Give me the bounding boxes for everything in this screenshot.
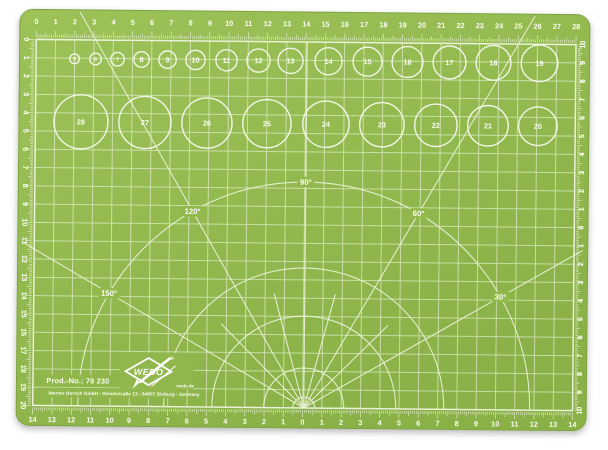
- top-ruler-number: 21: [437, 21, 445, 30]
- right-ruler-number: 9: [575, 390, 584, 394]
- circle-number-17: 17: [445, 58, 453, 67]
- left-ruler-number: 11: [20, 237, 29, 245]
- circle-number-9: 9: [165, 55, 169, 64]
- top-ruler-number: 11: [245, 19, 253, 28]
- right-ruler-number: 10: [575, 407, 584, 415]
- left-ruler-number: 8: [21, 184, 30, 188]
- bottom-ruler-number: 6: [416, 419, 420, 428]
- circle-number-18: 18: [489, 58, 497, 67]
- bottom-ruler-number: 2: [339, 418, 343, 427]
- top-ruler-number: 27: [553, 22, 561, 31]
- left-ruler-number: 14: [20, 291, 29, 300]
- top-ruler-number: 26: [534, 22, 542, 31]
- left-ruler-number: 9: [21, 202, 30, 206]
- right-ruler-number: 7: [578, 97, 587, 101]
- bottom-ruler-number: 5: [204, 417, 208, 426]
- top-ruler-number: 16: [341, 20, 349, 29]
- top-ruler-number: 0: [34, 17, 38, 26]
- bottom-ruler-number: 0: [300, 417, 304, 426]
- top-ruler-number: 15: [321, 20, 329, 29]
- top-ruler-number: 20: [418, 21, 426, 30]
- product-number: Prod.-No.: 79 230: [46, 376, 109, 386]
- right-ruler-number: 3: [577, 171, 586, 175]
- bottom-ruler-number: 7: [435, 419, 439, 428]
- circle-number-14: 14: [324, 57, 333, 66]
- bottom-ruler-number: 12: [67, 415, 75, 424]
- circle-number-8: 8: [139, 55, 143, 64]
- left-ruler-number: 15: [20, 310, 29, 318]
- left-ruler-number: 18: [19, 365, 28, 373]
- angle-label-120: 120°: [184, 207, 200, 216]
- top-ruler-number: 12: [264, 19, 272, 28]
- right-ruler-number: 5: [577, 134, 586, 138]
- top-ruler-number: 6: [150, 18, 154, 27]
- top-ruler-number: 23: [476, 21, 484, 30]
- right-ruler-number: 6: [575, 335, 584, 339]
- left-ruler-number: 1: [22, 56, 31, 60]
- circle-number-15: 15: [363, 57, 371, 66]
- bottom-ruler-number: 11: [87, 415, 95, 424]
- angle-label-90: 90°: [300, 178, 312, 187]
- bottom-ruler-number: 3: [358, 418, 362, 427]
- bottom-ruler-number: 6: [185, 416, 189, 425]
- circle-number-24: 24: [322, 120, 331, 129]
- right-ruler-number: 8: [578, 79, 587, 83]
- website-label: wedo.de: [175, 383, 194, 388]
- left-ruler-number: 0: [22, 37, 31, 41]
- left-ruler-number: 7: [21, 165, 30, 169]
- top-ruler-number: 28: [572, 22, 580, 31]
- bottom-ruler-number: 2: [262, 417, 266, 426]
- bottom-ruler-number: 10: [491, 419, 499, 428]
- circle-number-13: 13: [286, 56, 294, 65]
- circle-number-23: 23: [378, 120, 386, 129]
- top-ruler-number: 17: [360, 20, 368, 29]
- bottom-ruler-number: 12: [530, 420, 538, 429]
- angle-label-60: 60°: [413, 209, 425, 218]
- top-ruler-number: 3: [92, 17, 96, 26]
- bottom-ruler-number: 7: [165, 416, 169, 425]
- left-ruler-number: 17: [19, 346, 28, 354]
- circle-number-5: 5: [73, 57, 76, 63]
- top-ruler-number: 10: [225, 19, 233, 28]
- left-ruler-number: 16: [19, 328, 28, 336]
- circle-number-11: 11: [223, 56, 231, 65]
- bottom-ruler-number: 13: [549, 420, 557, 429]
- bottom-ruler-number: 14: [28, 415, 37, 424]
- right-ruler-number: 1: [576, 244, 585, 248]
- top-ruler-number: 19: [399, 20, 407, 29]
- product-photo: 30°60°90°120°150°56789101112131415161718…: [0, 0, 608, 450]
- bottom-ruler-number: 3: [243, 417, 247, 426]
- circle-number-7: 7: [116, 57, 119, 63]
- bottom-ruler-number: 5: [397, 418, 401, 427]
- top-ruler-number: 14: [302, 19, 311, 28]
- right-ruler-number: 3: [576, 280, 585, 284]
- bottom-ruler-number: 10: [106, 416, 114, 425]
- circle-number-19: 19: [535, 59, 543, 68]
- right-ruler-number: 2: [576, 262, 585, 266]
- circle-number-10: 10: [191, 56, 199, 65]
- circle-number-20: 20: [534, 122, 542, 131]
- left-ruler-number: 10: [20, 218, 29, 226]
- top-ruler-number: 22: [456, 21, 464, 30]
- top-ruler-number: 8: [189, 18, 193, 27]
- circle-number-16: 16: [403, 58, 411, 67]
- bottom-ruler-number: 13: [48, 415, 56, 424]
- left-ruler-number: 19: [19, 383, 28, 391]
- bottom-ruler-number: 8: [146, 416, 150, 425]
- top-ruler-number: 7: [169, 18, 173, 27]
- left-ruler-number: 6: [21, 147, 30, 151]
- bottom-ruler-number: 14: [568, 420, 577, 429]
- circle-number-21: 21: [484, 121, 492, 130]
- top-ruler-number: 25: [514, 22, 522, 31]
- angle-label-150: 150°: [101, 289, 117, 298]
- circle-number-28: 28: [77, 117, 85, 126]
- right-ruler-number: 6: [577, 116, 586, 120]
- right-ruler-number: 9: [578, 61, 587, 65]
- top-ruler-number: 13: [283, 19, 291, 28]
- left-ruler-number: 3: [22, 92, 31, 96]
- bottom-ruler-number: 8: [455, 419, 459, 428]
- left-ruler-number: 2: [22, 74, 31, 78]
- top-ruler-number: 24: [495, 21, 504, 30]
- bottom-ruler-number: 1: [281, 417, 285, 426]
- right-ruler-number: 0: [576, 226, 585, 230]
- right-ruler-number: 8: [575, 372, 584, 376]
- right-ruler-number: 5: [576, 317, 585, 321]
- left-ruler-number: 5: [21, 129, 30, 133]
- top-ruler-number: 2: [73, 17, 77, 26]
- angle-label-30: 30°: [495, 293, 507, 302]
- left-ruler-number: 13: [20, 273, 29, 281]
- right-ruler-number: 1: [577, 207, 586, 211]
- circle-number-22: 22: [432, 121, 440, 130]
- right-ruler-number: 7: [575, 354, 584, 358]
- left-ruler-number: 12: [20, 255, 29, 263]
- circle-number-25: 25: [263, 119, 271, 128]
- bottom-ruler-number: 9: [127, 416, 131, 425]
- circle-number-6: 6: [94, 57, 97, 63]
- right-ruler-number: 2: [577, 189, 586, 193]
- bottom-ruler-number: 1: [320, 418, 324, 427]
- circle-number-27: 27: [141, 118, 149, 127]
- cutting-mat: 30°60°90°120°150°56789101112131415161718…: [16, 9, 590, 430]
- bottom-ruler-number: 11: [511, 420, 519, 429]
- right-ruler-number: 10: [578, 41, 587, 49]
- top-ruler-number: 18: [379, 20, 387, 29]
- circle-number-26: 26: [203, 119, 211, 128]
- bottom-ruler-number: 9: [474, 419, 478, 428]
- circle-number-12: 12: [254, 56, 262, 65]
- top-ruler-number: 5: [131, 18, 135, 27]
- cutting-mat-photo: 30°60°90°120°150°56789101112131415161718…: [0, 0, 608, 450]
- left-ruler-number: 20: [19, 401, 28, 409]
- top-ruler-number: 9: [208, 19, 212, 28]
- top-ruler-number: 1: [54, 17, 58, 26]
